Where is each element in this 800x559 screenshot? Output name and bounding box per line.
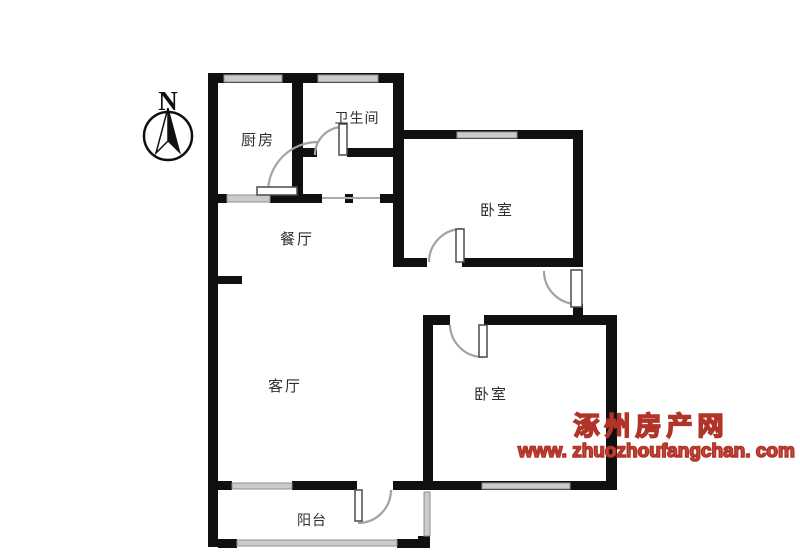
wall-segment bbox=[397, 539, 418, 548]
wall-segment bbox=[393, 481, 423, 490]
balcony-window bbox=[237, 540, 397, 546]
bathroom-window bbox=[318, 75, 378, 82]
wall-segment bbox=[606, 315, 617, 490]
wall-segment bbox=[393, 73, 404, 267]
north-compass: N bbox=[144, 86, 192, 160]
wall-segment bbox=[218, 539, 237, 548]
room-label-bedroom-north: 卧室 bbox=[480, 202, 514, 219]
room-label-kitchen: 厨房 bbox=[241, 132, 275, 149]
watermark-site-url: www. zhuozhoufangchan. com bbox=[518, 441, 784, 462]
room-label-balcony: 阳台 bbox=[297, 512, 327, 528]
wall-segment bbox=[218, 481, 232, 490]
watermark-site-name: 涿州房产网 bbox=[518, 412, 784, 441]
room-labels: 厨房 卫生间 卧室 餐厅 客厅 卧室 阳台 bbox=[241, 110, 514, 528]
wall-segment bbox=[462, 258, 583, 267]
bathroom-door-leaf bbox=[339, 124, 347, 155]
wall-segment bbox=[423, 315, 433, 490]
wall-segment bbox=[218, 194, 227, 203]
wall-segment bbox=[484, 315, 617, 325]
balcony-door-arc bbox=[358, 490, 391, 523]
balcony-side-window bbox=[424, 492, 430, 536]
watermark: 涿州房产网 www. zhuozhoufangchan. com bbox=[518, 412, 784, 462]
bedroom-north-door-leaf bbox=[456, 229, 464, 262]
room-label-living: 客厅 bbox=[268, 378, 302, 395]
entry-door-leaf bbox=[571, 270, 582, 307]
wall-segment bbox=[208, 73, 218, 547]
bedroom-south-door-leaf bbox=[479, 325, 487, 357]
room-label-dining: 餐厅 bbox=[280, 231, 314, 248]
bedroom-south-door-arc bbox=[450, 325, 483, 357]
living-room-window bbox=[232, 483, 292, 489]
room-label-bathroom: 卫生间 bbox=[335, 110, 380, 126]
wall-segment bbox=[218, 276, 242, 284]
kitchen-pass-window bbox=[227, 195, 270, 202]
wall-segment bbox=[292, 481, 357, 490]
wall-segment bbox=[418, 536, 430, 548]
bedroom-south-window bbox=[482, 483, 570, 489]
floor-plan: N 厨房 卫生间 卧室 餐厅 客厅 卧室 阳台 bbox=[0, 0, 800, 559]
room-label-bedroom-south: 卧室 bbox=[474, 386, 508, 403]
balcony-door-leaf bbox=[355, 490, 362, 521]
wall-segment bbox=[393, 258, 427, 267]
wall-segment bbox=[380, 194, 393, 203]
kitchen-window bbox=[224, 75, 282, 82]
bedroom-north-window bbox=[457, 132, 517, 138]
floor-plan-page: N 厨房 卫生间 卧室 餐厅 客厅 卧室 阳台 涿州房产网 www. zhuoz… bbox=[0, 0, 800, 559]
wall-segment bbox=[573, 130, 583, 267]
kitchen-door-leaf bbox=[257, 187, 297, 195]
wall-segment bbox=[292, 83, 303, 196]
